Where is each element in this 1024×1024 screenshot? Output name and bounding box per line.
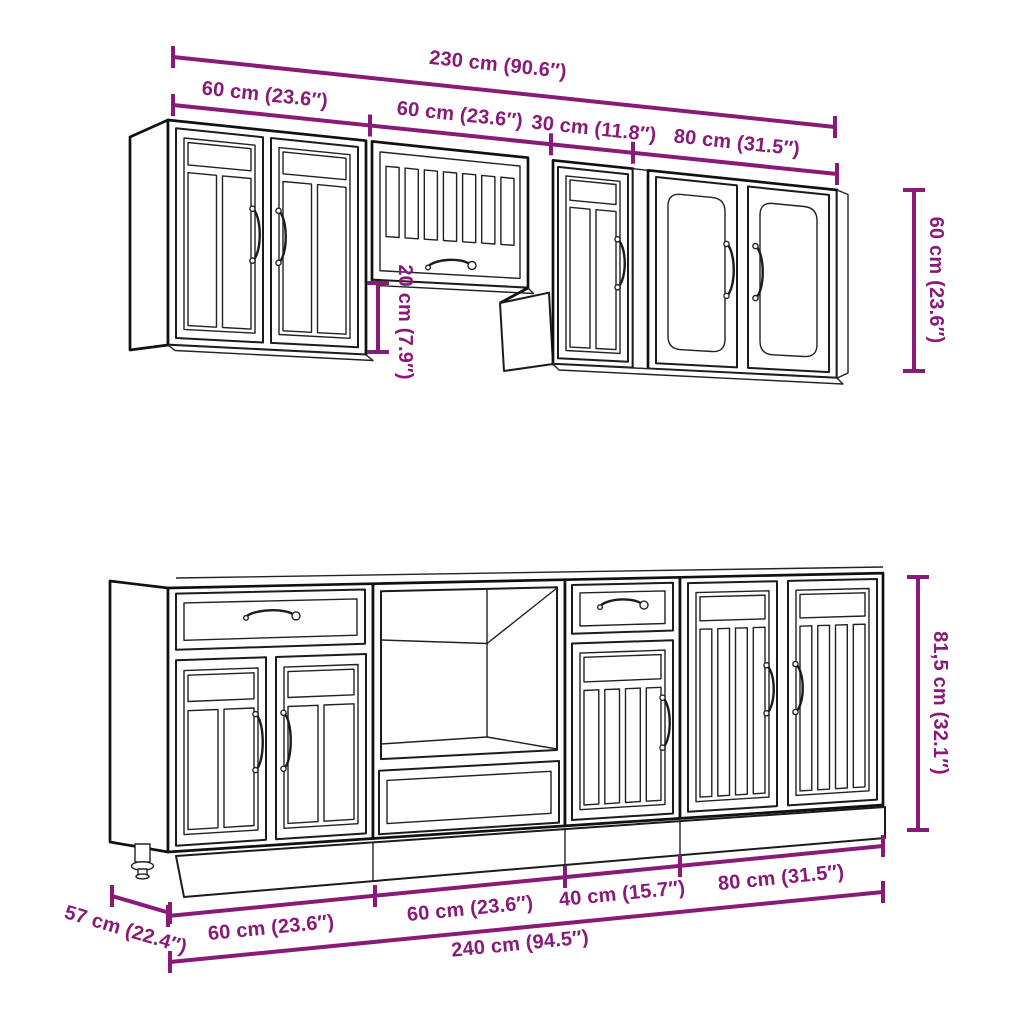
dim-base-depth: 57 cm (22.4″) — [62, 885, 190, 958]
dim-label-top-seg1: 60 cm (23.6″) — [201, 77, 329, 112]
dim-wall-height: 60 cm (23.6″) — [903, 190, 947, 371]
wall-cabinet-30-side-panel — [500, 293, 553, 371]
base-cabinets-row — [110, 567, 885, 897]
dim-label-wall-height: 60 cm (23.6″) — [925, 217, 947, 344]
diagram-canvas: 230 cm (90.6″) 60 cm (23.6″) 60 cm (23.6… — [0, 0, 1024, 1024]
dim-base-height: 81,5 cm (32.1″) — [907, 577, 951, 830]
dim-label-base-seg3: 40 cm (15.7″) — [558, 877, 686, 911]
wall-cabinet-80 — [648, 170, 848, 378]
cabinet-line-art — [110, 120, 885, 897]
kitchen-cabinet-set-diagram: 230 cm (90.6″) 60 cm (23.6″) 60 cm (23.6… — [0, 0, 1024, 1024]
dim-label-top-seg2: 60 cm (23.6″) — [396, 97, 524, 132]
dim-label-base-height: 81,5 cm (32.1″) — [929, 631, 951, 775]
dim-label-base-seg4: 80 cm (31.5″) — [717, 861, 845, 895]
cabinet-foot — [132, 844, 154, 879]
base-cabinet-80 — [680, 573, 883, 818]
base-cabinet-40 — [565, 577, 680, 826]
dim-label-top-seg4: 80 cm (31.5″) — [673, 125, 801, 160]
wall-cabinet-60-left — [130, 120, 373, 361]
base-cabinet-60-drawer — [110, 581, 373, 852]
dim-label-base-seg2: 60 cm (23.6″) — [406, 892, 534, 926]
dim-label-base-seg1: 60 cm (23.6″) — [207, 911, 335, 945]
base-cabinet-60-appliance-open — [373, 580, 565, 839]
dim-label-top-total: 230 cm (90.6″) — [428, 47, 568, 83]
wall-cabinet-30 — [553, 160, 648, 368]
wall-cabinets-row — [130, 120, 848, 384]
dim-label-wall-gap: 20 cm (7.9″) — [394, 264, 416, 379]
